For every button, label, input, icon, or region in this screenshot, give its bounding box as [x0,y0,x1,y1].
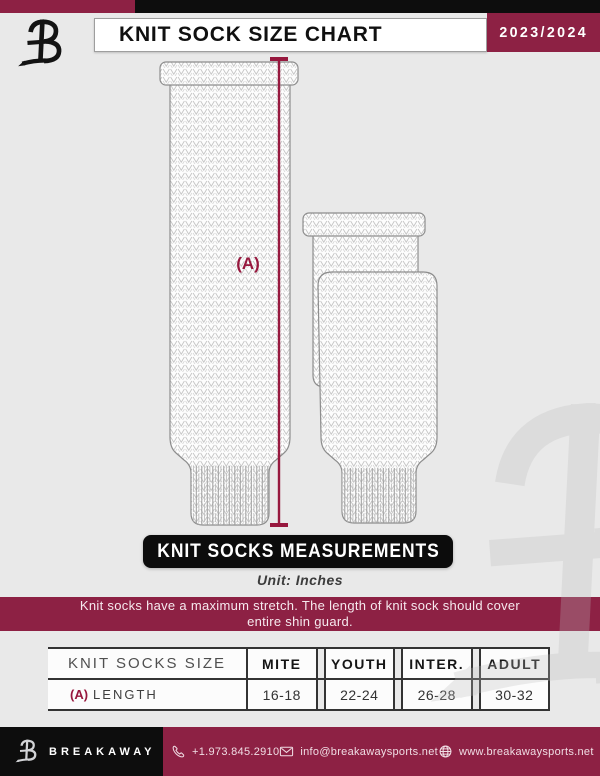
email-contact: info@breakawaysports.net [279,744,438,759]
stretch-notice-banner: Knit socks have a maximum stretch. The l… [0,597,600,631]
measurements-banner: KNIT SOCKS MEASUREMENTS [143,535,453,568]
table-header-adult: ADULT [479,649,551,678]
footer-contact: +1.973.845.2910 info@breakawaysports.net… [163,727,600,776]
breakaway-b-logo-icon [16,15,70,73]
phone-number: +1.973.845.2910 [192,746,279,758]
season-label: 2023/2024 [499,24,588,41]
header-accent-strip-black [135,0,600,13]
globe-icon [438,744,453,759]
breakaway-b-logo-icon-footer [15,737,40,766]
email-address: info@breakawaysports.net [300,746,438,758]
notice-line-2: entire shin guard. [247,614,353,630]
size-table: KNIT SOCKS SIZE MITE YOUTH INTER. ADULT … [48,647,550,711]
size-chart-page: KNIT SOCK SIZE CHART 2023/2024 [0,0,600,776]
table-border-bottom [48,709,550,711]
length-value-mite: 16-18 [246,680,318,709]
header-accent-strip-red [0,0,135,13]
brand-name: BREAKAWAY [49,746,156,758]
knit-sock-diagram [140,52,460,532]
page-footer: BREAKAWAY +1.973.845.2910 info@breakaway… [0,727,600,776]
table-header-row: KNIT SOCKS SIZE MITE YOUTH INTER. ADULT [48,649,550,678]
sock-large-illustration [160,62,298,525]
table-border-top [48,647,550,649]
table-header-inter: INTER. [401,649,473,678]
season-badge: 2023/2024 [487,13,600,52]
page-title: KNIT SOCK SIZE CHART [119,23,382,47]
table-header-youth: YOUTH [324,649,396,678]
notice-line-1: Knit socks have a maximum stretch. The l… [80,598,520,614]
website-url: www.breakawaysports.net [459,746,594,758]
table-header-size: KNIT SOCKS SIZE [48,649,246,678]
footer-brand: BREAKAWAY [0,727,163,776]
length-value-youth: 22-24 [324,680,396,709]
length-row-label: (A) LENGTH [48,680,246,709]
length-value-inter: 26-28 [401,680,473,709]
phone-contact: +1.973.845.2910 [171,744,279,759]
unit-note: Unit: Inches [0,572,600,588]
table-border-middle [48,678,550,680]
page-title-bar: KNIT SOCK SIZE CHART [94,18,487,52]
length-value-adult: 30-32 [479,680,551,709]
dimension-a-label: (A) [230,254,266,274]
phone-icon [171,744,186,759]
email-icon [279,744,294,759]
table-length-row: (A) LENGTH 16-18 22-24 26-28 30-32 [48,680,550,709]
website-contact: www.breakawaysports.net [438,744,594,759]
sock-small-illustration [318,272,437,523]
measurements-banner-label: KNIT SOCKS MEASUREMENTS [157,541,439,563]
table-header-mite: MITE [246,649,318,678]
